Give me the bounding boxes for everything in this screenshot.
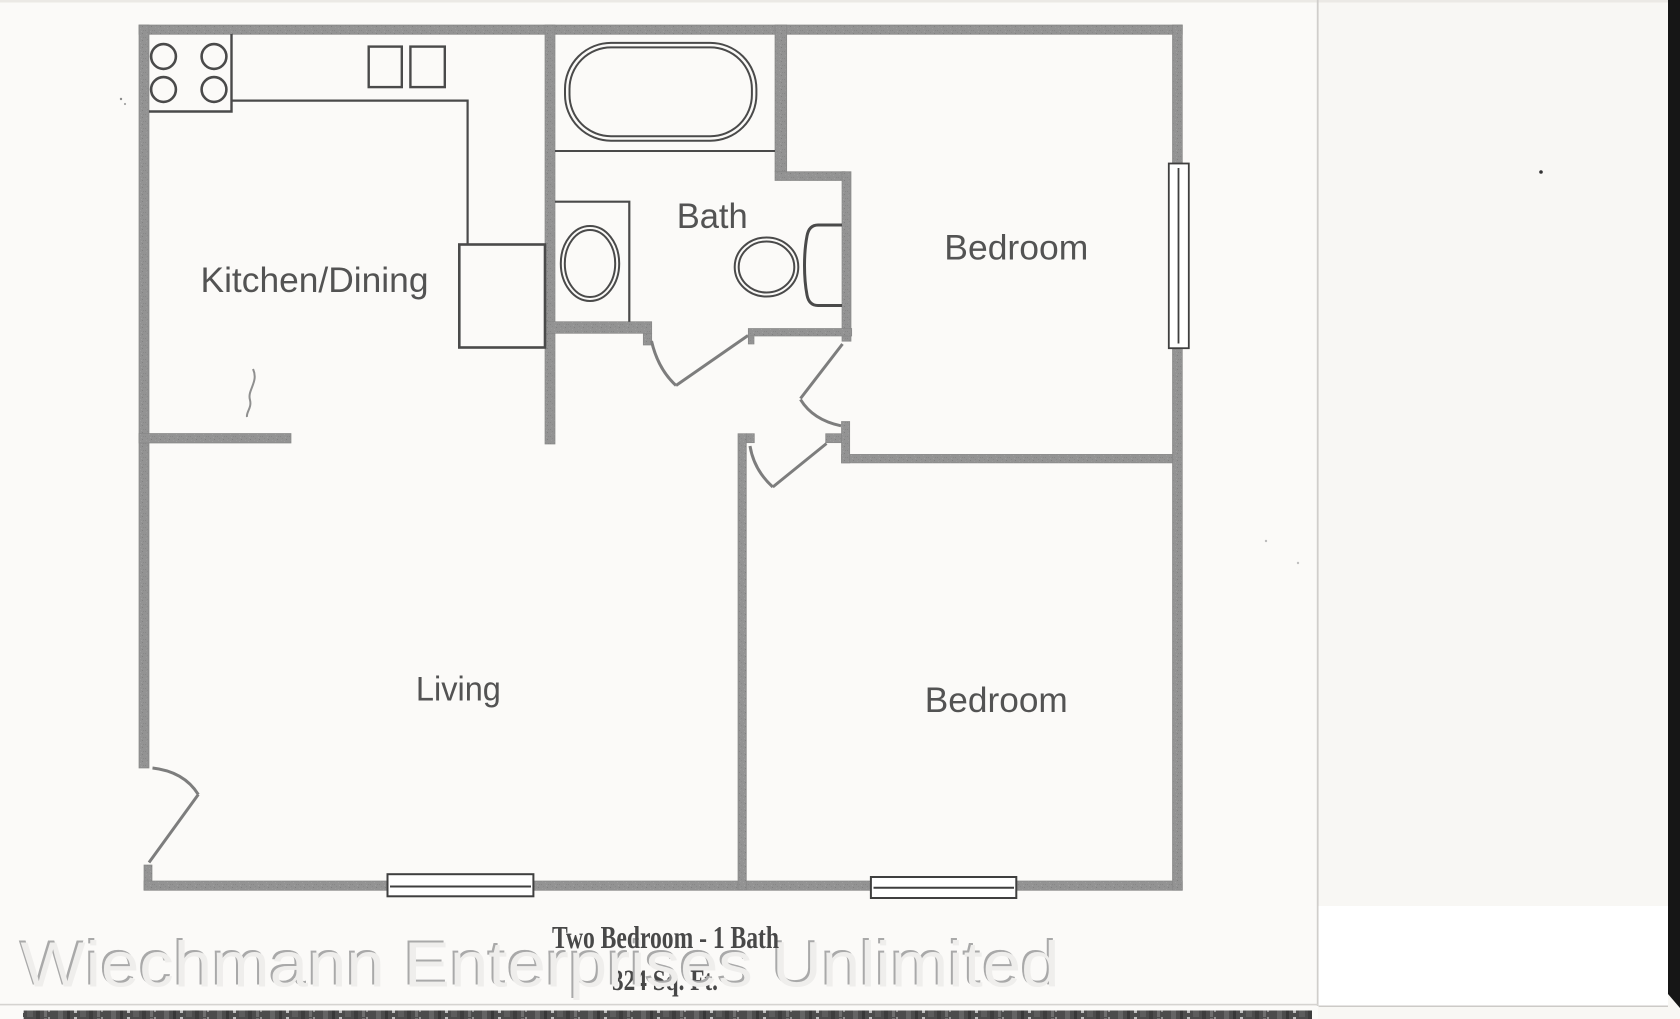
svg-text:Kitchen/Dining: Kitchen/Dining (201, 261, 429, 300)
svg-text:Bedroom: Bedroom (944, 229, 1088, 268)
svg-text:Living: Living (416, 671, 501, 709)
svg-text:Bedroom: Bedroom (925, 681, 1068, 720)
svg-text:Two Bedroom - 1 Bath: Two Bedroom - 1 Bath (552, 919, 779, 955)
svg-text:Wiechmann Enterprises Unlimite: Wiechmann Enterprises Unlimited (21, 929, 1060, 1001)
svg-text:Bath: Bath (677, 197, 748, 236)
